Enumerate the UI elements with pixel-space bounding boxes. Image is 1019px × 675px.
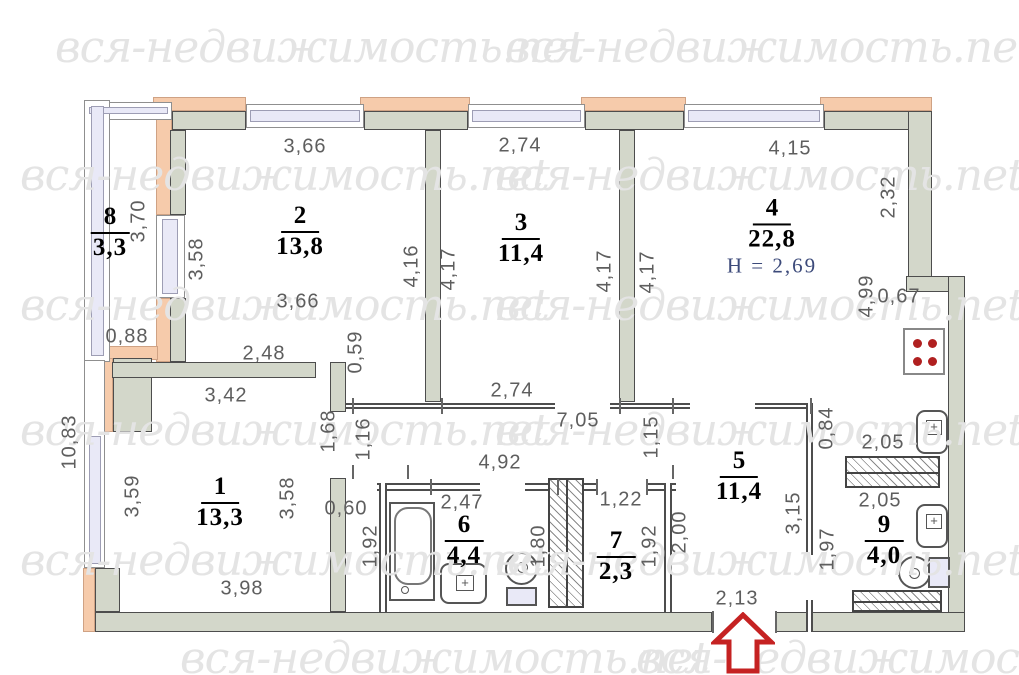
- dimension-tick: [810, 398, 812, 414]
- window-glass: [162, 219, 178, 294]
- partition-wall: [806, 403, 813, 555]
- facade-accent: [360, 97, 470, 111]
- room-area: 3,3: [91, 234, 130, 262]
- room-label-6: 64,4: [445, 511, 484, 569]
- dimension-label: 0,59: [345, 331, 368, 374]
- room-area: 22,8: [727, 225, 817, 253]
- dimension-label: 2,74: [499, 135, 542, 158]
- dimension-label: 0,60: [325, 498, 368, 521]
- dimension-label: 1,92: [639, 525, 662, 568]
- wall: [908, 111, 932, 288]
- dimension-label: 7,05: [557, 410, 600, 433]
- room-area: 11,4: [716, 478, 762, 506]
- room-number: 4: [753, 194, 792, 225]
- wall: [95, 612, 712, 632]
- watermark-text: вся-недвижимость.net: [55, 22, 515, 80]
- room-area: 4,4: [445, 542, 484, 570]
- dimension-label: 2,48: [243, 343, 286, 366]
- dimension-label: 1,15: [641, 416, 664, 459]
- room-label-4: 422,8H = 2,69: [727, 194, 817, 277]
- wall: [585, 111, 684, 130]
- floor-plan: + + + вся-недвижимость.netвся-недвижимос…: [0, 0, 1019, 675]
- dimension-tick: [352, 398, 354, 414]
- wall: [948, 276, 965, 632]
- dimension-label: 1,97: [817, 528, 840, 571]
- dimension-label: 2,05: [862, 432, 905, 455]
- room-number: 9: [865, 511, 904, 542]
- wall: [364, 111, 468, 130]
- wall: [775, 612, 965, 632]
- dimension-tick: [619, 398, 621, 414]
- dimension-label: 4,99: [856, 275, 879, 318]
- stove-icon: [903, 328, 945, 375]
- wall: [170, 130, 186, 215]
- room-label-8: 83,3: [91, 203, 130, 261]
- room-area: 11,4: [498, 240, 544, 268]
- dimension-label: 4,17: [637, 251, 660, 294]
- window-glass: [250, 110, 360, 122]
- partition-wall: [346, 403, 555, 409]
- dimension-label: 1,16: [353, 418, 376, 461]
- room-label-9: 94,0: [865, 511, 904, 569]
- dimension-label: 4,17: [438, 248, 461, 291]
- dimension-label: 2,47: [441, 492, 484, 515]
- washbasin-icon: +: [440, 563, 487, 604]
- window-glass: [688, 110, 820, 122]
- room-number: 7: [597, 527, 636, 558]
- dimension-label: 1,68: [318, 410, 341, 453]
- kitchen-sink-icon: +: [916, 410, 948, 454]
- toilet-tank-icon: [928, 557, 950, 588]
- wall: [619, 130, 635, 402]
- room-label-7: 72,3: [597, 527, 636, 585]
- duct-shaft: [548, 478, 584, 608]
- partition-wall: [525, 483, 548, 491]
- duct-shaft: [852, 590, 942, 612]
- dimension-tick: [407, 465, 409, 479]
- dimension-tick: [441, 398, 443, 414]
- dimension-label: 3,59: [122, 475, 145, 518]
- dimension-label: 3,70: [128, 200, 151, 243]
- dimension-label: 1,22: [600, 489, 643, 512]
- entrance-arrow-icon: [711, 612, 775, 674]
- dimension-label: 10,83: [59, 414, 82, 469]
- dimension-label: 4,16: [401, 245, 424, 288]
- room-label-5: 511,4: [716, 447, 762, 505]
- dimension-label: 3,66: [284, 136, 327, 159]
- dimension-tick: [646, 479, 648, 495]
- dimension-label: 3,66: [277, 291, 320, 314]
- dimension-label: 0,88: [106, 326, 149, 349]
- room-area: 13,8: [276, 233, 324, 261]
- wall: [172, 111, 246, 130]
- facade-accent: [581, 97, 686, 111]
- wall: [170, 298, 186, 362]
- dimension-tick: [596, 479, 598, 495]
- dimension-tick: [672, 398, 674, 414]
- room-number: 8: [91, 203, 130, 234]
- dimension-label: 3,58: [277, 477, 300, 520]
- facade-accent: [820, 97, 932, 111]
- partition-wall: [755, 403, 813, 409]
- dimension-label: 1,80: [528, 525, 551, 568]
- dimension-tick: [430, 479, 432, 495]
- dimension-label: 2,05: [859, 490, 902, 513]
- partition-wall: [584, 483, 596, 491]
- watermark-text: вся-недвижимость.net: [505, 22, 965, 80]
- dimension-tick: [672, 465, 674, 479]
- room-number: 3: [502, 209, 541, 240]
- dimension-label: 4,92: [479, 452, 522, 475]
- dimension-label: 2,74: [491, 380, 534, 403]
- room-label-2: 213,8: [276, 202, 324, 260]
- watermark-text: вся-недвижимость.net: [636, 633, 1019, 675]
- dimension-label: 0,67: [878, 286, 921, 309]
- dimension-tick: [557, 479, 559, 495]
- room-label-1: 113,3: [196, 473, 244, 531]
- dimension-tick: [352, 465, 354, 479]
- room-area: 2,3: [597, 558, 636, 586]
- dimension-label: 2,00: [669, 511, 692, 554]
- partition-wall: [610, 403, 690, 409]
- bathtub-icon: [389, 502, 435, 601]
- dimension-label: 3,15: [783, 492, 806, 535]
- wall: [95, 568, 120, 612]
- partition-wall: [806, 600, 813, 632]
- room-number: 5: [720, 447, 759, 478]
- partition-wall: [377, 483, 480, 491]
- dimension-label: 1,92: [360, 525, 383, 568]
- dimension-tick: [775, 611, 777, 633]
- room-area: 13,3: [196, 504, 244, 532]
- duct-shaft: [845, 456, 940, 488]
- toilet-tank-icon: [506, 587, 537, 606]
- washbasin-icon: +: [916, 504, 948, 548]
- dimension-label: 2,32: [878, 176, 901, 219]
- facade-accent: [83, 568, 95, 632]
- dimension-label: 0,84: [816, 407, 839, 450]
- dimension-label: 3,98: [221, 578, 264, 601]
- window-glass: [89, 436, 101, 564]
- ceiling-height-note: H = 2,69: [727, 254, 817, 277]
- room-number: 1: [201, 473, 240, 504]
- room-area: 4,0: [865, 542, 904, 570]
- window-glass: [472, 110, 581, 122]
- dimension-label: 3,58: [186, 238, 209, 281]
- watermark-text: вся-недвижимость.net: [180, 633, 640, 675]
- room-number: 6: [445, 511, 484, 542]
- dimension-label: 4,17: [594, 250, 617, 293]
- dimension-label: 4,15: [769, 138, 812, 161]
- room-number: 2: [281, 202, 320, 233]
- room-label-3: 311,4: [498, 209, 544, 267]
- dimension-label: 2,13: [716, 588, 759, 611]
- dimension-label: 3,42: [205, 385, 248, 408]
